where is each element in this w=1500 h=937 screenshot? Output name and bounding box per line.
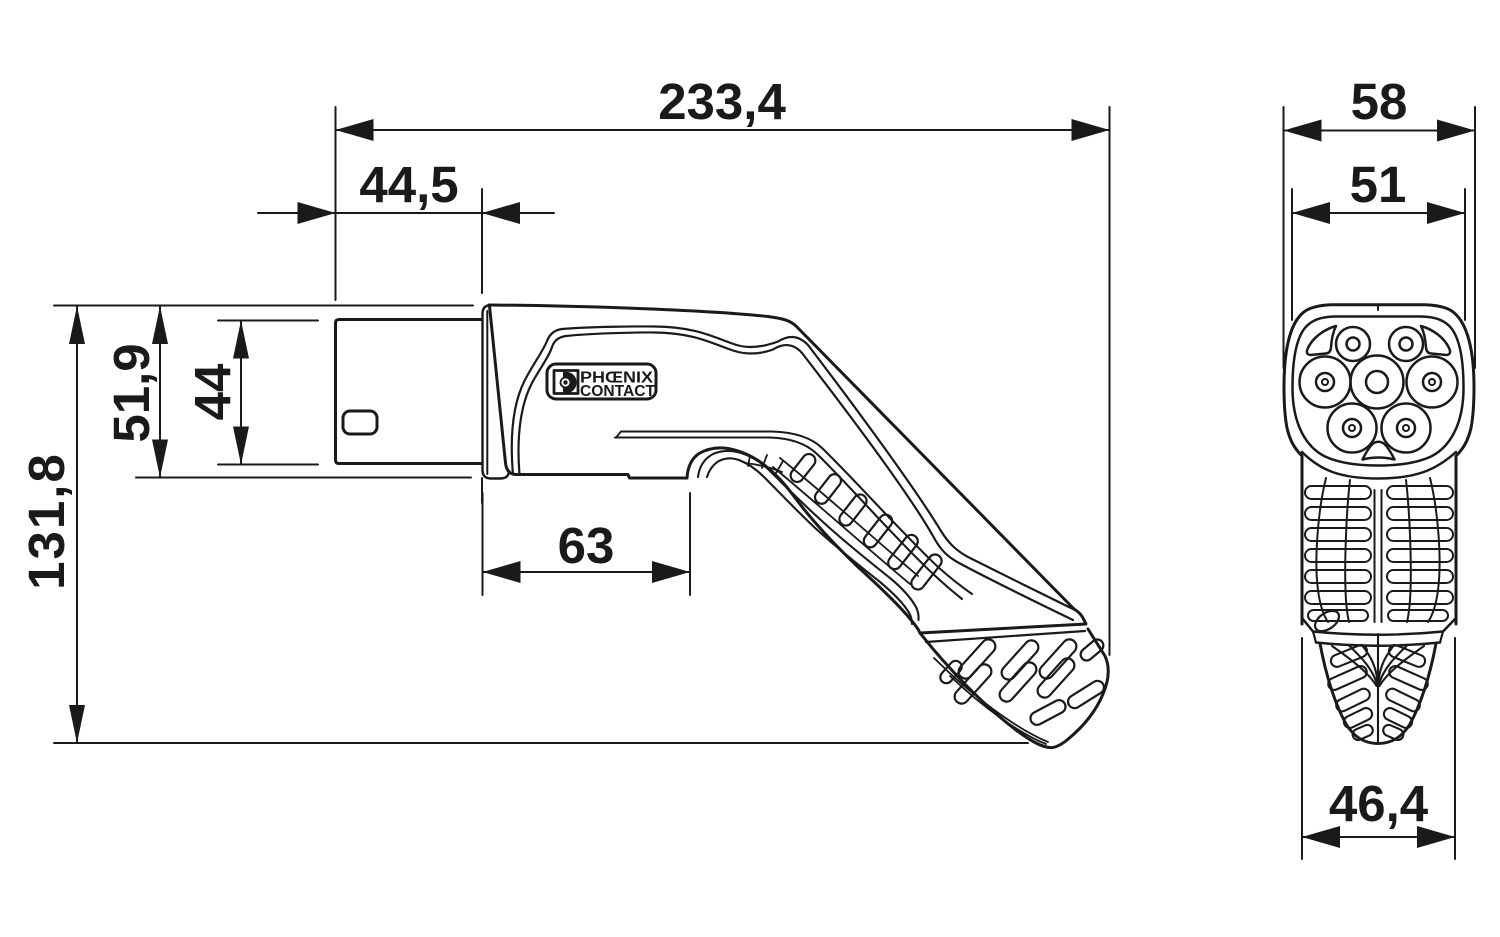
svg-text:131,8: 131,8 [18,452,75,590]
svg-text:44: 44 [184,363,241,420]
svg-text:233,4: 233,4 [658,73,786,130]
svg-text:51,9: 51,9 [103,343,160,442]
svg-text:63: 63 [558,517,615,574]
svg-text:44,5: 44,5 [359,156,458,213]
svg-text:CONTACT: CONTACT [580,383,655,400]
svg-text:58: 58 [1351,73,1408,130]
svg-text:46,4: 46,4 [1329,775,1429,832]
svg-text:51: 51 [1350,156,1407,213]
